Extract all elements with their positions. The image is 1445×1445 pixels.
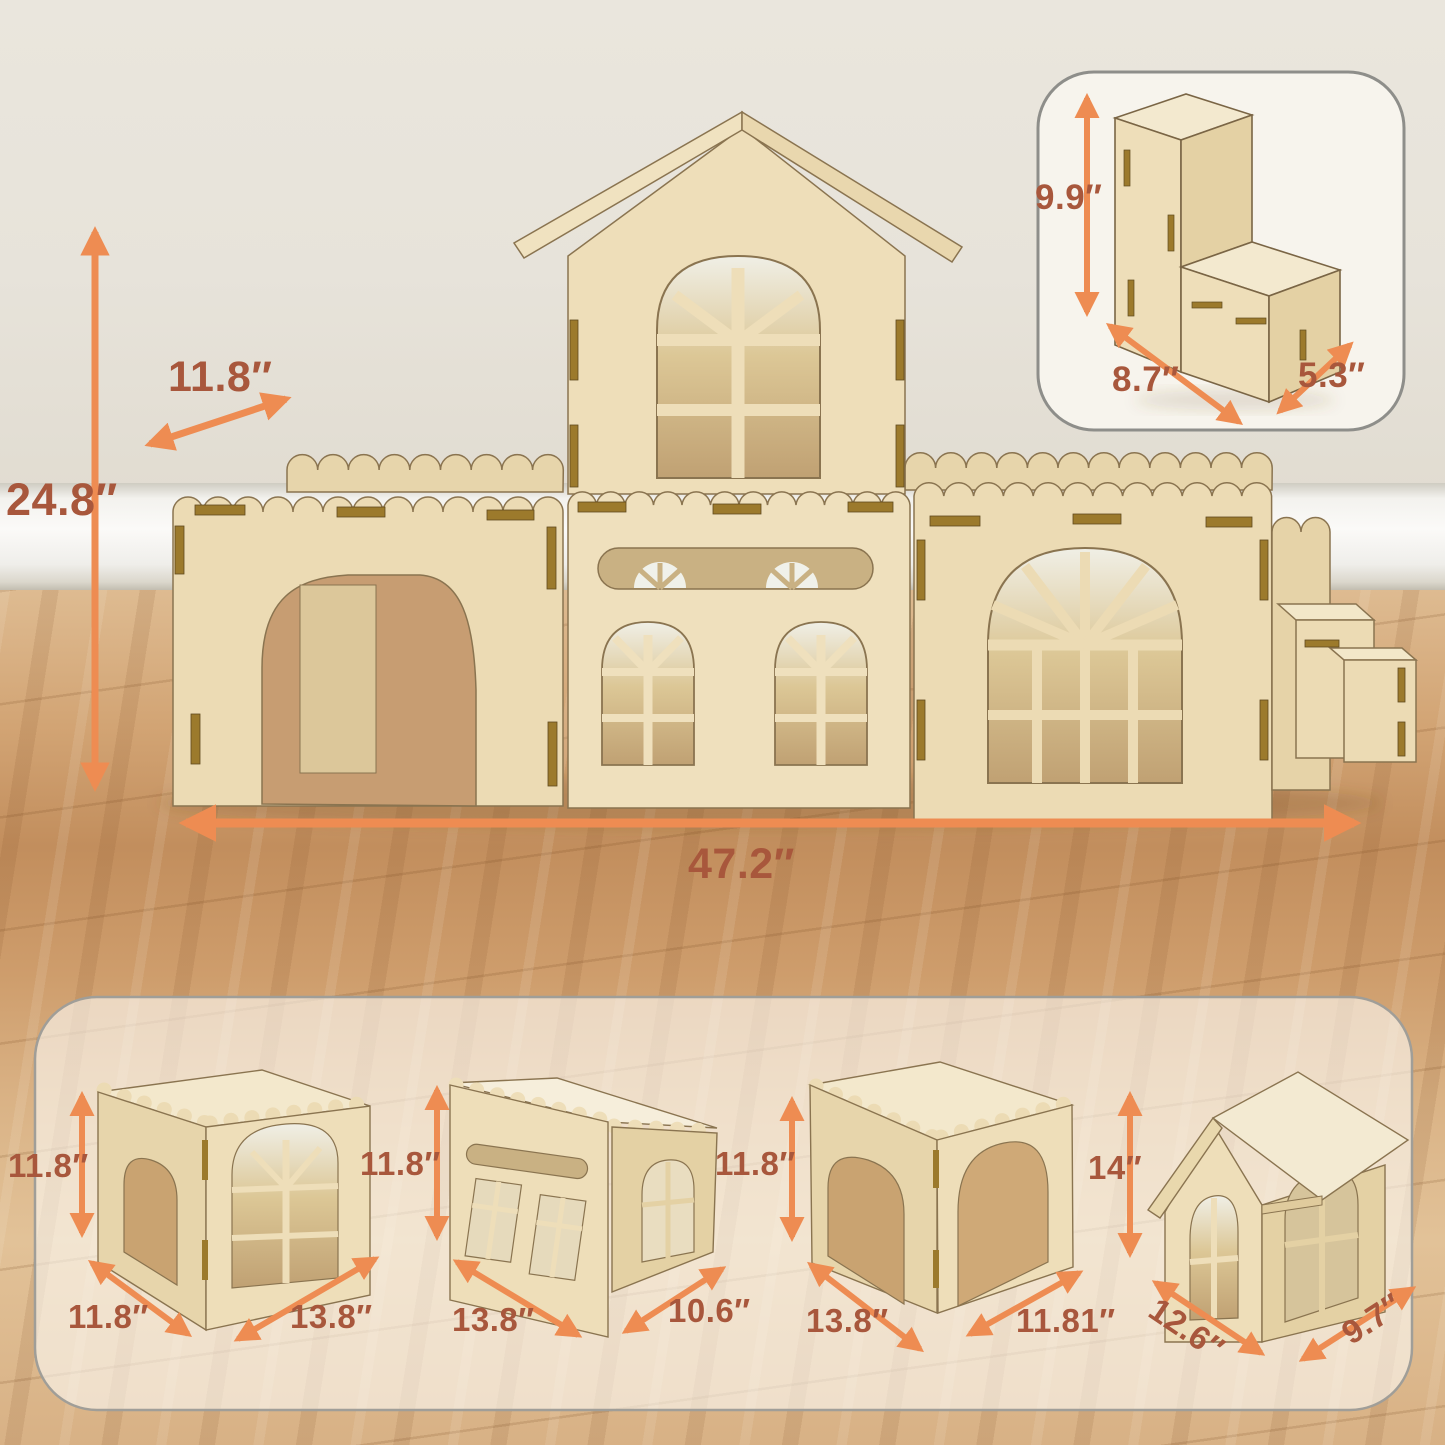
dim-module4-height: 14″ bbox=[1088, 1151, 1142, 1184]
dim-module2-width: 13.8″ bbox=[452, 1303, 535, 1336]
dim-module3-depth: 11.81″ bbox=[1016, 1304, 1116, 1337]
dim-main-width: 47.2″ bbox=[688, 843, 795, 886]
dim-module3-height: 11.8″ bbox=[715, 1147, 796, 1180]
dim-inset-width: 8.7″ bbox=[1112, 362, 1179, 397]
dim-main-depth: 11.8″ bbox=[168, 356, 272, 399]
dim-module1-height: 11.8″ bbox=[8, 1149, 89, 1182]
main-depth-arrow bbox=[150, 399, 286, 444]
dim-module1-width: 13.8″ bbox=[290, 1300, 373, 1333]
dim-inset-depth: 5.3″ bbox=[1298, 358, 1365, 393]
dim-module2-depth: 10.6″ bbox=[668, 1294, 751, 1327]
dim-main-height: 24.8″ bbox=[6, 477, 118, 522]
dim-module1-depth: 11.8″ bbox=[68, 1300, 149, 1333]
dimension-arrows bbox=[0, 0, 1445, 1445]
dim-module3-width: 13.8″ bbox=[806, 1304, 889, 1337]
dim-module2-height: 11.8″ bbox=[360, 1147, 441, 1180]
product-dimension-image: 24.8″ 11.8″ 47.2″ 9.9″ 8.7″ 5.3″ 11.8″ 1… bbox=[0, 0, 1445, 1445]
dim-inset-height: 9.9″ bbox=[1035, 180, 1102, 215]
